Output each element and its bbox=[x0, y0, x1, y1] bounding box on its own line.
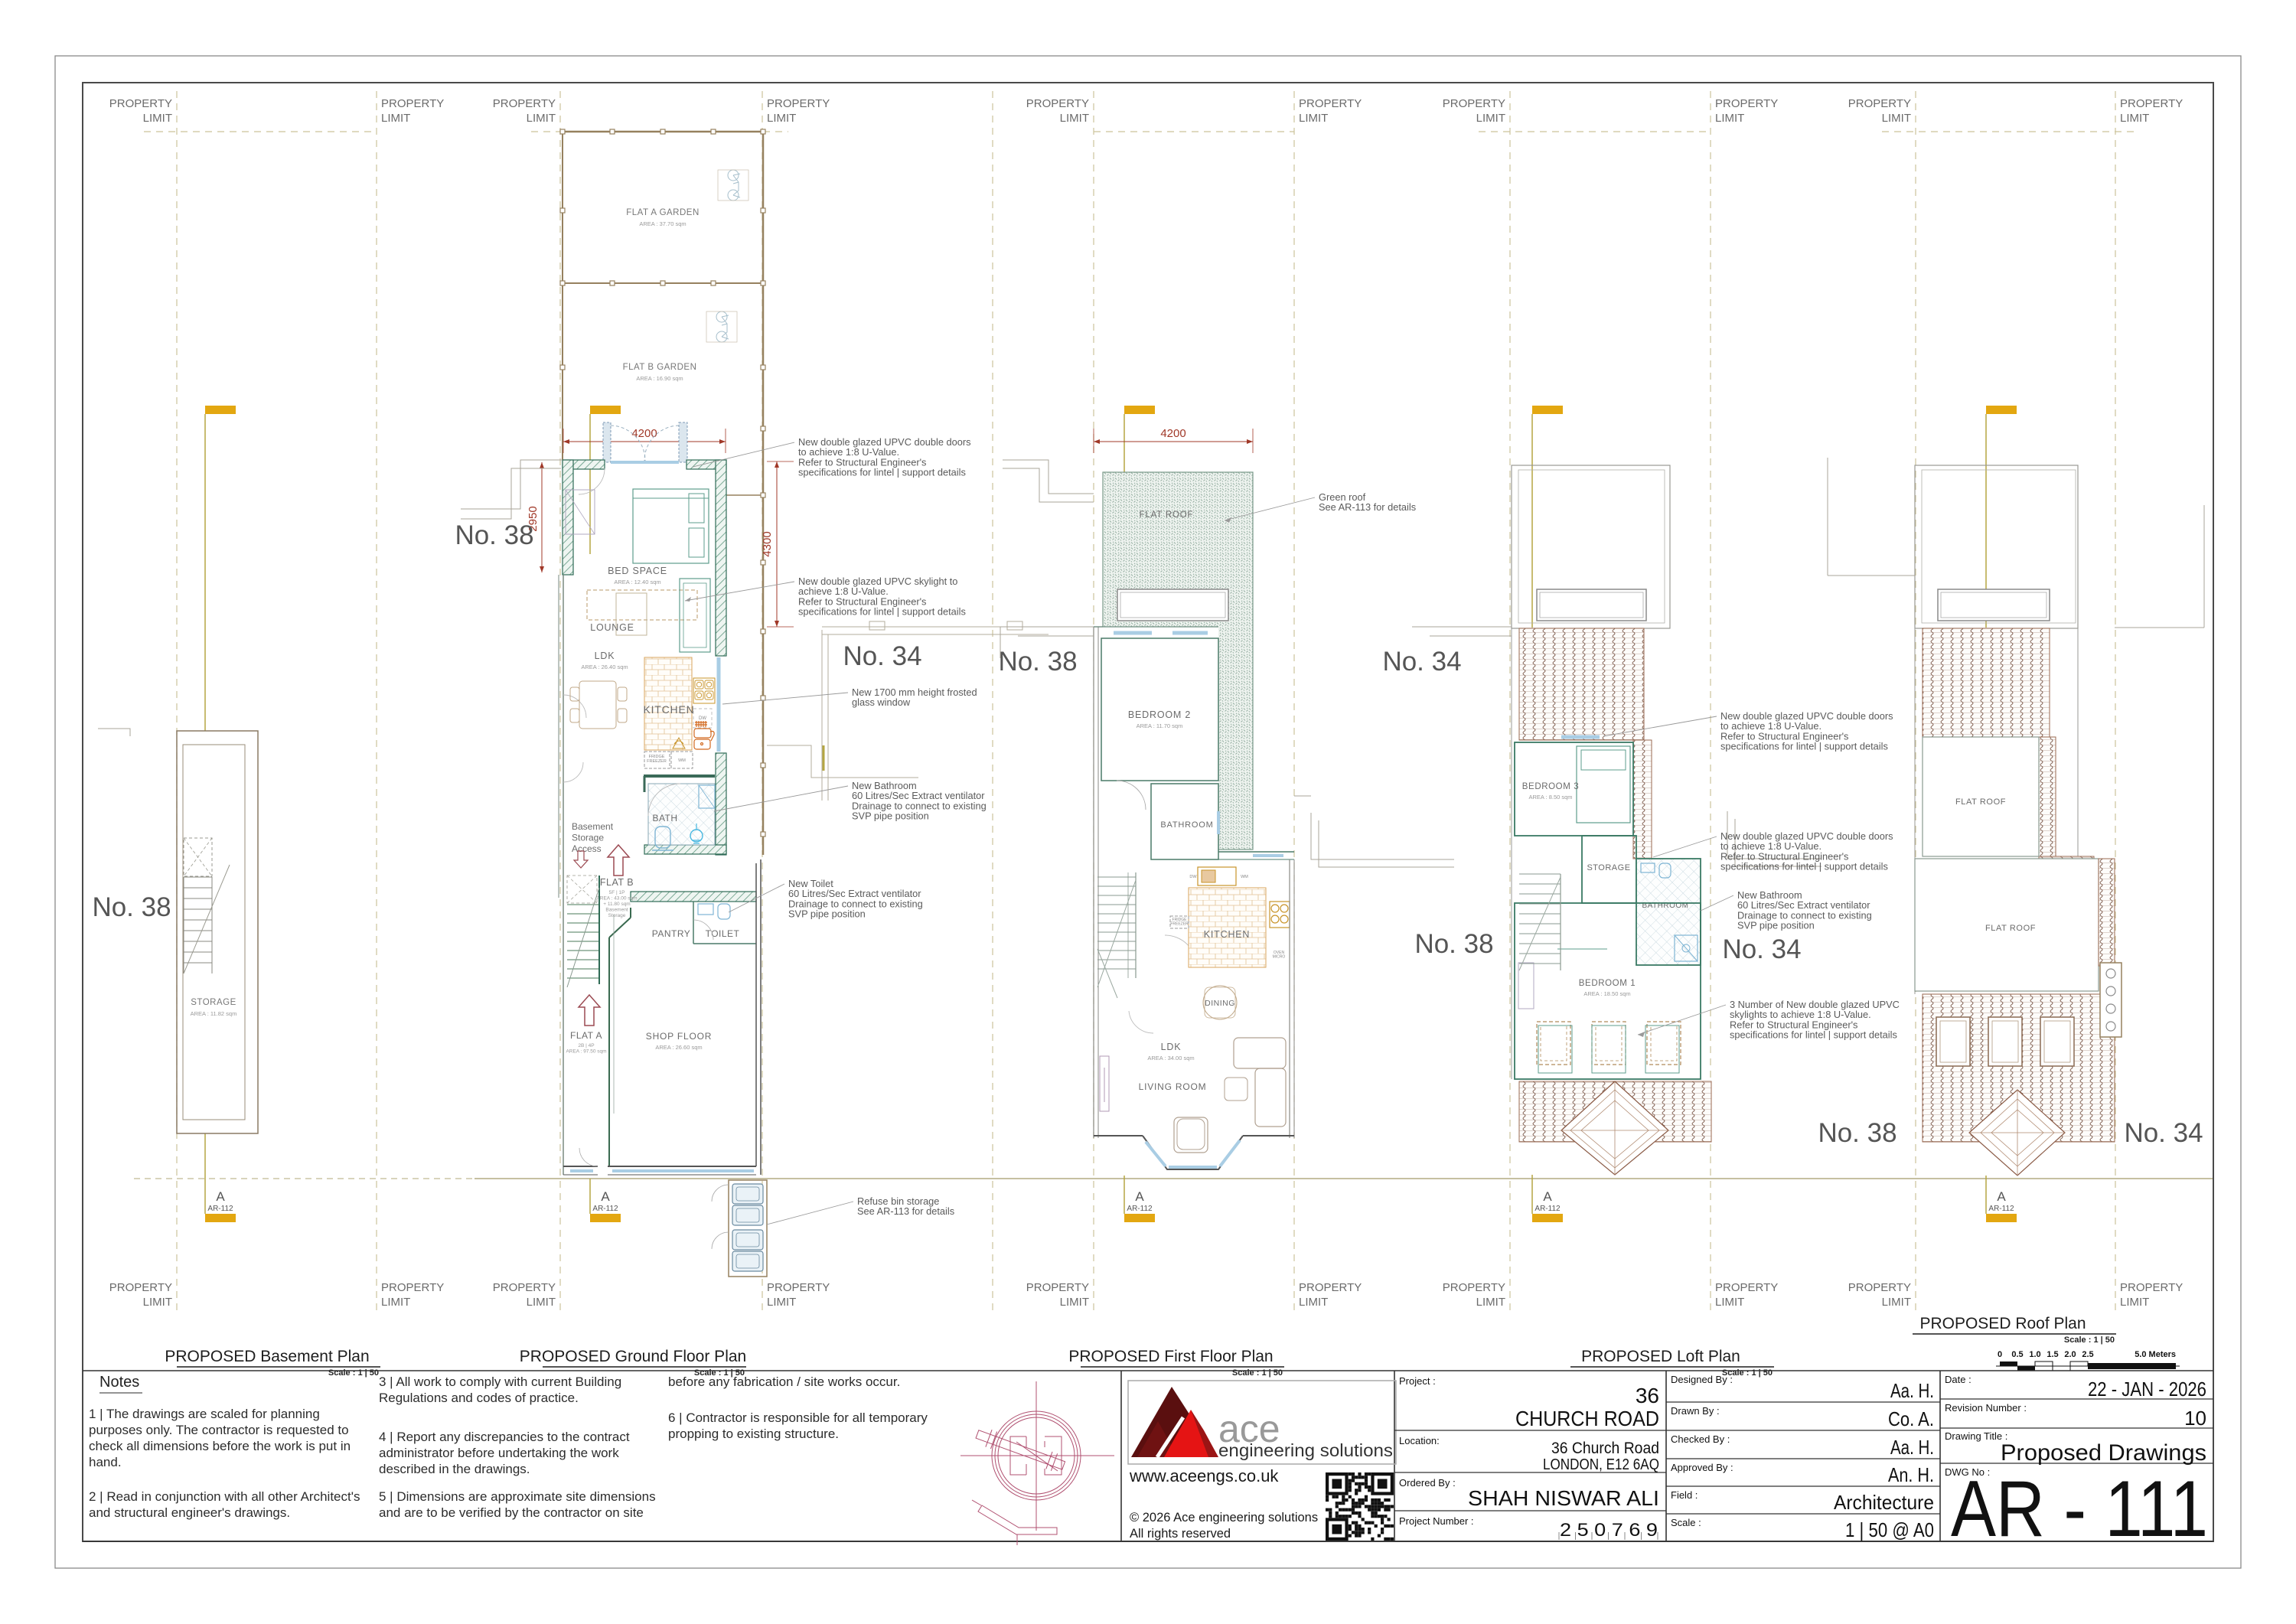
svg-text:Checked By :: Checked By : bbox=[1671, 1433, 1730, 1445]
svg-text:Co. A.: Co. A. bbox=[1888, 1407, 1934, 1430]
svg-text:No. 38: No. 38 bbox=[1818, 1118, 1896, 1148]
svg-text:SHAH NISWAR ALI: SHAH NISWAR ALI bbox=[1468, 1486, 1659, 1510]
svg-text:Scale : 1 | 50: Scale : 1 | 50 bbox=[2064, 1335, 2115, 1345]
svg-text:1.5: 1.5 bbox=[2047, 1350, 2058, 1359]
svg-text:No. 38: No. 38 bbox=[1414, 929, 1493, 959]
svg-text:Proposed Drawings: Proposed Drawings bbox=[2001, 1440, 2206, 1466]
svg-text:FRIDGEFREEZER: FRIDGEFREEZER bbox=[1170, 918, 1189, 927]
svg-text:DW: DW bbox=[699, 716, 706, 721]
svg-text:BATH: BATH bbox=[652, 813, 677, 823]
svg-text:Field :: Field : bbox=[1671, 1489, 1698, 1501]
svg-text:FRIDGEFREEZER: FRIDGEFREEZER bbox=[647, 755, 667, 764]
svg-text:No. 34: No. 34 bbox=[1382, 647, 1461, 677]
svg-text:LDK: LDK bbox=[1161, 1042, 1182, 1052]
svg-text:PROPOSED Ground Floor Plan: PROPOSED Ground Floor Plan bbox=[520, 1348, 746, 1365]
svg-text:KITCHEN: KITCHEN bbox=[1204, 929, 1250, 940]
svg-text:No. 34: No. 34 bbox=[2124, 1118, 2203, 1148]
svg-text:BEDROOM 1: BEDROOM 1 bbox=[1579, 979, 1636, 988]
svg-text:22 - JAN - 2026: 22 - JAN - 2026 bbox=[2088, 1378, 2206, 1401]
svg-text:FLAT B: FLAT B bbox=[600, 877, 634, 888]
svg-text:BEDROOM 3: BEDROOM 3 bbox=[1522, 782, 1579, 791]
svg-text:before any fabrication / site: before any fabrication / site works occu… bbox=[668, 1375, 900, 1389]
svg-text:FLAT A GARDEN: FLAT A GARDEN bbox=[626, 208, 700, 217]
svg-text:LOUNGE: LOUNGE bbox=[590, 622, 634, 633]
svg-text:BEDROOM 2: BEDROOM 2 bbox=[1128, 709, 1191, 720]
svg-text:Drawing Title :: Drawing Title : bbox=[1945, 1430, 2007, 1442]
svg-text:A: A bbox=[1997, 1189, 2006, 1204]
svg-text:No. 34: No. 34 bbox=[1722, 934, 1801, 964]
svg-text:Scale : 1 | 50: Scale : 1 | 50 bbox=[1232, 1368, 1283, 1378]
svg-text:A: A bbox=[216, 1189, 225, 1204]
svg-text:FLAT ROOF: FLAT ROOF bbox=[1985, 924, 2036, 933]
svg-text:Date :: Date : bbox=[1945, 1374, 1971, 1385]
svg-text:AREA : 8.50 sqm: AREA : 8.50 sqm bbox=[1528, 794, 1572, 801]
svg-text:Project Number :: Project Number : bbox=[1399, 1515, 1474, 1527]
svg-text:Location:: Location: bbox=[1399, 1435, 1440, 1446]
svg-text:AREA : 12.40 sqm: AREA : 12.40 sqm bbox=[614, 579, 660, 585]
svg-text:AR - 111: AR - 111 bbox=[1951, 1465, 2208, 1554]
svg-text:AR-112: AR-112 bbox=[592, 1205, 618, 1213]
svg-text:Approved By :: Approved By : bbox=[1671, 1462, 1733, 1473]
svg-text:A: A bbox=[1543, 1189, 1552, 1204]
svg-text:AREA : 11.70 sqm: AREA : 11.70 sqm bbox=[1137, 722, 1183, 729]
svg-text:1.0: 1.0 bbox=[2029, 1350, 2040, 1359]
svg-text:Project :: Project : bbox=[1399, 1375, 1436, 1387]
svg-text:2.0: 2.0 bbox=[2064, 1350, 2076, 1359]
svg-text:STORAGE: STORAGE bbox=[191, 998, 236, 1007]
svg-text:SHOP FLOOR: SHOP FLOOR bbox=[646, 1031, 712, 1042]
svg-text:Scale : 1 | 50: Scale : 1 | 50 bbox=[328, 1368, 379, 1378]
svg-text:No. 34: No. 34 bbox=[843, 641, 921, 671]
svg-text:FLAT B GARDEN: FLAT B GARDEN bbox=[623, 363, 697, 372]
svg-text:AR-112: AR-112 bbox=[1127, 1205, 1153, 1213]
svg-text:WM: WM bbox=[678, 758, 686, 763]
svg-text:Scale :: Scale : bbox=[1671, 1517, 1701, 1528]
svg-text:0.5: 0.5 bbox=[2011, 1350, 2023, 1359]
svg-text:No. 38: No. 38 bbox=[455, 520, 533, 550]
svg-text:DINING: DINING bbox=[1205, 999, 1235, 1008]
svg-text:AREA : 18.50 sqm: AREA : 18.50 sqm bbox=[1583, 990, 1630, 997]
svg-text:FLAT ROOF: FLAT ROOF bbox=[1955, 797, 2006, 807]
svg-text:AR-112: AR-112 bbox=[207, 1205, 233, 1213]
svg-text:10: 10 bbox=[2184, 1407, 2206, 1430]
svg-text:Aa. H.: Aa. H. bbox=[1890, 1436, 1934, 1459]
svg-text:OVENMICRO: OVENMICRO bbox=[1273, 951, 1286, 960]
svg-text:PROPOSED Loft Plan: PROPOSED Loft Plan bbox=[1581, 1348, 1740, 1365]
svg-text:36 Church Road: 36 Church Road bbox=[1551, 1440, 1659, 1457]
svg-text:Aa. H.: Aa. H. bbox=[1890, 1379, 1934, 1402]
svg-text:A: A bbox=[1135, 1189, 1144, 1204]
svg-text:PROPOSED Roof Plan: PROPOSED Roof Plan bbox=[1919, 1315, 2086, 1332]
svg-text:BED SPACE: BED SPACE bbox=[608, 566, 667, 576]
svg-text:LIVING ROOM: LIVING ROOM bbox=[1139, 1081, 1207, 1092]
svg-text:AREA : 26.60 sqm: AREA : 26.60 sqm bbox=[655, 1044, 702, 1051]
svg-text:Ordered By :: Ordered By : bbox=[1399, 1477, 1456, 1489]
svg-text:1 | 50 @ A0: 1 | 50 @ A0 bbox=[1845, 1518, 1934, 1541]
svg-text:AREA : 34.00 sqm: AREA : 34.00 sqm bbox=[1147, 1055, 1194, 1061]
svg-text:LDK: LDK bbox=[595, 651, 615, 661]
svg-text:2.5: 2.5 bbox=[2082, 1350, 2093, 1359]
svg-text:engineering solutions: engineering solutions bbox=[1218, 1440, 1393, 1460]
svg-text:5.0 Meters: 5.0 Meters bbox=[2135, 1350, 2176, 1359]
svg-text:No. 38: No. 38 bbox=[998, 647, 1077, 677]
svg-text:PANTRY: PANTRY bbox=[652, 928, 691, 939]
svg-text:A: A bbox=[601, 1189, 610, 1204]
svg-text:LONDON, E12 6AQ: LONDON, E12 6AQ bbox=[1543, 1456, 1659, 1473]
svg-text:AREA : 37.70 sqm: AREA : 37.70 sqm bbox=[639, 220, 686, 227]
svg-text:4200: 4200 bbox=[631, 427, 657, 440]
svg-text:No. 38: No. 38 bbox=[92, 892, 171, 922]
svg-text:Architecture: Architecture bbox=[1834, 1491, 1934, 1514]
svg-text:PROPOSED Basement Plan: PROPOSED Basement Plan bbox=[165, 1348, 369, 1365]
svg-text:FLAT A: FLAT A bbox=[570, 1030, 602, 1041]
svg-text:BATHROOM: BATHROOM bbox=[1160, 820, 1213, 830]
svg-text:Drawn By :: Drawn By : bbox=[1671, 1405, 1720, 1417]
svg-text:AREA : 26.40 sqm: AREA : 26.40 sqm bbox=[581, 664, 628, 670]
svg-text:An. H.: An. H. bbox=[1888, 1463, 1934, 1486]
svg-text:Revision Number :: Revision Number : bbox=[1945, 1402, 2027, 1414]
svg-text:CHURCH ROAD: CHURCH ROAD bbox=[1515, 1407, 1659, 1430]
svg-text:AR-112: AR-112 bbox=[1534, 1205, 1561, 1213]
svg-text:FLAT ROOF: FLAT ROOF bbox=[1140, 510, 1194, 520]
svg-text:AREA : 16.90 sqm: AREA : 16.90 sqm bbox=[636, 375, 683, 382]
svg-text:STORAGE: STORAGE bbox=[1587, 863, 1630, 872]
svg-text:www.aceengs.co.uk: www.aceengs.co.uk bbox=[1129, 1466, 1279, 1485]
svg-text:AREA : 11.82 sqm: AREA : 11.82 sqm bbox=[191, 1010, 237, 1017]
svg-text:4300: 4300 bbox=[761, 531, 774, 556]
svg-text:DW: DW bbox=[1189, 875, 1197, 879]
svg-text:WM: WM bbox=[1241, 875, 1248, 879]
svg-text:36: 36 bbox=[1636, 1384, 1659, 1407]
svg-text:Notes: Notes bbox=[99, 1374, 139, 1391]
svg-text:0: 0 bbox=[1998, 1350, 2002, 1359]
svg-text:AR-112: AR-112 bbox=[1988, 1205, 2014, 1213]
svg-text:KITCHEN: KITCHEN bbox=[643, 703, 694, 716]
svg-text:PROPOSED First Floor Plan: PROPOSED First Floor Plan bbox=[1068, 1348, 1273, 1365]
svg-text:4200: 4200 bbox=[1160, 427, 1186, 440]
svg-text:Designed By :: Designed By : bbox=[1671, 1374, 1733, 1385]
